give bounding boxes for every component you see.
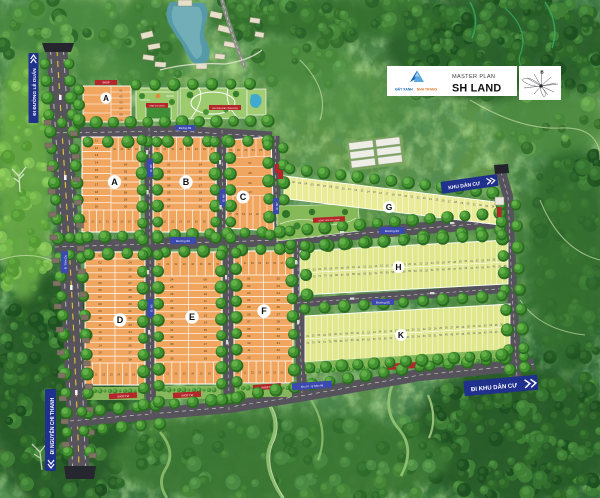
svg-text:32: 32 <box>170 335 174 339</box>
svg-text:22: 22 <box>174 372 177 376</box>
svg-text:23: 23 <box>276 284 280 288</box>
svg-text:C: C <box>240 192 247 202</box>
svg-text:02: 02 <box>119 95 123 99</box>
svg-text:14: 14 <box>203 321 207 325</box>
svg-text:16: 16 <box>203 335 207 339</box>
svg-text:36: 36 <box>208 262 211 266</box>
svg-text:SHOP TM: SHOP TM <box>117 394 129 399</box>
svg-text:19: 19 <box>95 197 99 201</box>
svg-text:09: 09 <box>98 309 102 313</box>
svg-text:25: 25 <box>128 267 132 271</box>
svg-text:31: 31 <box>276 341 280 345</box>
svg-text:24: 24 <box>124 163 128 167</box>
svg-text:24: 24 <box>276 291 280 295</box>
svg-text:35: 35 <box>128 337 132 341</box>
svg-text:34: 34 <box>128 330 132 334</box>
svg-text:06: 06 <box>98 288 102 292</box>
svg-text:27: 27 <box>170 299 174 303</box>
svg-text:02: 02 <box>247 284 251 288</box>
svg-text:25: 25 <box>195 220 198 224</box>
svg-text:31: 31 <box>244 261 247 265</box>
svg-text:06: 06 <box>167 198 171 202</box>
svg-text:33: 33 <box>276 355 280 359</box>
svg-text:15: 15 <box>95 168 99 172</box>
svg-text:22: 22 <box>276 277 280 281</box>
svg-text:25: 25 <box>124 170 128 174</box>
svg-text:Đ. Tiên Du: Đ. Tiên Du <box>64 255 68 270</box>
svg-text:28: 28 <box>276 320 280 324</box>
svg-text:02: 02 <box>237 148 241 152</box>
svg-text:SH LAND: SH LAND <box>452 83 501 95</box>
svg-text:33: 33 <box>258 261 261 265</box>
svg-text:15: 15 <box>198 170 202 174</box>
svg-text:29: 29 <box>276 327 280 331</box>
svg-text:24: 24 <box>128 260 132 264</box>
svg-text:10: 10 <box>247 341 251 345</box>
svg-text:17: 17 <box>95 182 99 186</box>
svg-text:37: 37 <box>211 147 214 151</box>
svg-text:21: 21 <box>244 371 247 375</box>
svg-text:30: 30 <box>276 334 280 338</box>
svg-text:SHOP: SHOP <box>102 81 110 85</box>
svg-text:05: 05 <box>167 191 171 195</box>
svg-text:01: 01 <box>98 254 102 258</box>
svg-text:32: 32 <box>171 147 174 151</box>
svg-text:04: 04 <box>119 107 123 111</box>
svg-text:07: 07 <box>247 320 251 324</box>
svg-text:28: 28 <box>128 288 132 292</box>
svg-text:26: 26 <box>208 372 211 376</box>
svg-text:24: 24 <box>191 372 194 376</box>
svg-text:32: 32 <box>128 316 132 320</box>
svg-text:35: 35 <box>195 147 198 151</box>
svg-text:25: 25 <box>120 220 123 224</box>
svg-text:15: 15 <box>98 351 102 355</box>
svg-text:K: K <box>398 330 405 340</box>
svg-text:31: 31 <box>120 147 123 151</box>
svg-text:09: 09 <box>247 334 251 338</box>
svg-text:03: 03 <box>167 177 171 181</box>
svg-text:F: F <box>261 306 267 316</box>
svg-text:10: 10 <box>98 316 102 320</box>
svg-text:Đ. N5: Đ. N5 <box>149 304 153 312</box>
svg-text:25: 25 <box>125 373 128 377</box>
svg-text:24: 24 <box>187 220 190 224</box>
svg-text:28: 28 <box>170 306 174 310</box>
svg-text:25: 25 <box>276 298 280 302</box>
svg-text:16: 16 <box>198 177 202 181</box>
svg-text:15: 15 <box>203 328 207 332</box>
svg-text:MASTER PLAN: MASTER PLAN <box>452 74 495 80</box>
svg-text:35: 35 <box>170 356 174 360</box>
svg-text:ĐI NGUYỄN CHI THANH: ĐI NGUYỄN CHI THANH <box>49 397 56 454</box>
svg-text:31: 31 <box>166 262 169 266</box>
svg-text:27: 27 <box>128 281 132 285</box>
svg-text:08: 08 <box>203 278 207 282</box>
svg-text:KHU VUI CHƠI: KHU VUI CHƠI <box>149 106 165 108</box>
svg-text:03: 03 <box>98 267 102 271</box>
svg-text:Đường 03: Đường 03 <box>385 229 399 233</box>
svg-text:03: 03 <box>247 291 251 295</box>
svg-text:25: 25 <box>170 285 174 289</box>
svg-text:12: 12 <box>203 306 207 310</box>
svg-text:22: 22 <box>251 371 254 375</box>
svg-text:17: 17 <box>203 342 207 346</box>
svg-text:ĐẤT XANH: ĐẤT XANH <box>395 88 413 92</box>
svg-text:13: 13 <box>256 212 260 216</box>
svg-text:32: 32 <box>276 348 280 352</box>
svg-text:33: 33 <box>170 342 174 346</box>
svg-text:23: 23 <box>179 220 182 224</box>
svg-text:26: 26 <box>132 373 135 377</box>
svg-text:A: A <box>103 94 109 103</box>
svg-text:05: 05 <box>119 113 123 117</box>
svg-text:23: 23 <box>106 220 109 224</box>
svg-text:34: 34 <box>191 262 194 266</box>
svg-text:34: 34 <box>266 261 269 265</box>
svg-text:06: 06 <box>247 312 251 316</box>
svg-text:29: 29 <box>128 295 132 299</box>
svg-text:11: 11 <box>247 348 250 352</box>
svg-text:33: 33 <box>128 323 132 327</box>
svg-text:30: 30 <box>128 302 132 306</box>
svg-text:11: 11 <box>98 323 101 327</box>
svg-text:05: 05 <box>259 148 263 152</box>
svg-text:22: 22 <box>99 220 102 224</box>
svg-text:05: 05 <box>98 281 102 285</box>
svg-text:03: 03 <box>119 101 123 105</box>
svg-text:08: 08 <box>248 171 252 175</box>
svg-text:30: 30 <box>124 205 128 209</box>
svg-text:13: 13 <box>98 337 102 341</box>
svg-text:13: 13 <box>203 313 207 317</box>
svg-text:A: A <box>111 177 118 187</box>
svg-text:30: 30 <box>113 147 116 151</box>
svg-text:27: 27 <box>276 312 280 316</box>
svg-text:04: 04 <box>252 148 256 152</box>
svg-text:B: B <box>183 177 190 187</box>
svg-text:17: 17 <box>228 212 232 216</box>
svg-text:01: 01 <box>167 163 171 167</box>
svg-text:26: 26 <box>128 220 131 224</box>
svg-text:37: 37 <box>128 351 132 355</box>
svg-text:KHU SINH HOẠT CỘNG ĐỒNG: KHU SINH HOẠT CỘNG ĐỒNG <box>212 107 238 110</box>
svg-text:12: 12 <box>247 355 251 359</box>
svg-text:06: 06 <box>119 119 123 123</box>
svg-text:36: 36 <box>203 147 206 151</box>
svg-text:33: 33 <box>183 262 186 266</box>
svg-text:25: 25 <box>200 372 203 376</box>
svg-text:35: 35 <box>273 261 276 265</box>
svg-text:04: 04 <box>98 274 102 278</box>
svg-text:16: 16 <box>235 212 239 216</box>
svg-text:26: 26 <box>128 274 132 278</box>
svg-text:21: 21 <box>166 372 169 376</box>
svg-text:28: 28 <box>124 191 128 195</box>
svg-text:21: 21 <box>91 220 94 224</box>
svg-text:18: 18 <box>95 190 99 194</box>
svg-text:04: 04 <box>247 298 251 302</box>
svg-text:02: 02 <box>98 260 102 264</box>
svg-text:14: 14 <box>95 161 99 165</box>
svg-text:19: 19 <box>203 356 207 360</box>
svg-text:Đ. N5: Đ. N5 <box>149 164 153 172</box>
svg-text:12: 12 <box>98 330 102 334</box>
svg-text:26: 26 <box>124 177 128 181</box>
svg-text:26: 26 <box>170 292 174 296</box>
svg-text:36: 36 <box>128 344 132 348</box>
svg-text:31: 31 <box>128 309 132 313</box>
svg-text:Đường N9: Đường N9 <box>179 126 192 130</box>
svg-text:11: 11 <box>95 139 98 143</box>
svg-text:35: 35 <box>200 262 203 266</box>
svg-text:20: 20 <box>95 204 99 208</box>
svg-text:31: 31 <box>170 328 174 332</box>
svg-text:G: G <box>386 202 393 212</box>
svg-text:18: 18 <box>203 349 207 353</box>
svg-text:15: 15 <box>242 212 246 216</box>
svg-text:33: 33 <box>179 147 182 151</box>
svg-text:01: 01 <box>119 89 123 93</box>
svg-text:07: 07 <box>98 295 102 299</box>
svg-text:03: 03 <box>244 148 248 152</box>
svg-text:32: 32 <box>251 261 254 265</box>
svg-text:H: H <box>395 262 401 272</box>
svg-text:Đ. N6: Đ. N6 <box>221 194 225 202</box>
svg-text:30: 30 <box>170 321 174 325</box>
svg-text:21: 21 <box>163 220 166 224</box>
svg-text:24: 24 <box>266 371 269 375</box>
svg-text:33: 33 <box>135 147 138 151</box>
svg-text:27: 27 <box>124 184 128 188</box>
svg-text:09: 09 <box>248 181 252 185</box>
svg-text:D: D <box>117 315 124 325</box>
svg-text:NHA TRANG: NHA TRANG <box>417 88 438 92</box>
svg-text:05: 05 <box>247 305 251 309</box>
svg-text:24: 24 <box>113 220 116 224</box>
svg-text:26: 26 <box>280 371 283 375</box>
svg-text:12: 12 <box>95 146 99 150</box>
svg-text:22: 22 <box>171 220 174 224</box>
svg-text:01: 01 <box>229 148 233 152</box>
svg-text:20: 20 <box>198 205 202 209</box>
svg-text:36: 36 <box>280 261 283 265</box>
svg-text:26: 26 <box>276 305 280 309</box>
svg-text:23: 23 <box>183 372 186 376</box>
svg-text:E: E <box>189 312 195 322</box>
svg-text:29: 29 <box>124 198 128 202</box>
svg-text:Đường 05: Đường 05 <box>376 300 390 304</box>
svg-text:07: 07 <box>248 161 252 165</box>
svg-text:21: 21 <box>95 373 98 377</box>
svg-text:14: 14 <box>249 212 253 216</box>
svg-text:19: 19 <box>198 198 202 202</box>
svg-text:10: 10 <box>203 292 207 296</box>
svg-text:34: 34 <box>187 147 190 151</box>
svg-text:02: 02 <box>167 170 171 174</box>
svg-text:38: 38 <box>128 358 132 362</box>
svg-text:18: 18 <box>198 191 202 195</box>
svg-text:22: 22 <box>102 373 105 377</box>
svg-text:29: 29 <box>170 313 174 317</box>
svg-text:14: 14 <box>98 344 102 348</box>
svg-text:08: 08 <box>98 302 102 306</box>
svg-text:23: 23 <box>258 371 261 375</box>
svg-text:10: 10 <box>248 190 252 194</box>
svg-text:16: 16 <box>95 175 99 179</box>
svg-text:24: 24 <box>170 278 174 282</box>
svg-text:07: 07 <box>167 205 171 209</box>
svg-text:11: 11 <box>204 299 207 303</box>
svg-text:26: 26 <box>203 220 206 224</box>
svg-text:34: 34 <box>170 349 174 353</box>
svg-text:30: 30 <box>155 147 158 151</box>
svg-text:25: 25 <box>273 371 276 375</box>
svg-text:01: 01 <box>247 277 251 281</box>
svg-text:Đường 03: Đường 03 <box>176 239 190 243</box>
svg-text:09: 09 <box>203 285 207 289</box>
svg-text:32: 32 <box>174 262 177 266</box>
svg-text:23: 23 <box>110 373 113 377</box>
svg-text:16: 16 <box>98 358 102 362</box>
svg-text:Đ. N7: Đ. N7 <box>275 202 279 210</box>
svg-text:04: 04 <box>167 184 171 188</box>
svg-text:13: 13 <box>95 153 99 157</box>
svg-text:14: 14 <box>198 163 202 167</box>
svg-text:17: 17 <box>198 184 202 188</box>
svg-text:24: 24 <box>117 373 120 377</box>
svg-text:08: 08 <box>247 327 251 331</box>
